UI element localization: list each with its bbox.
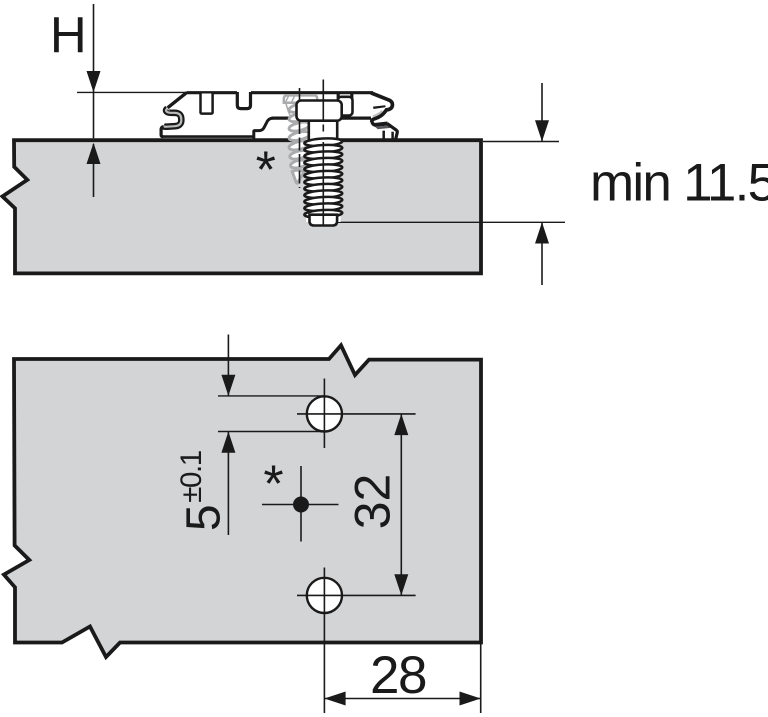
svg-text:*: * [256,141,276,199]
svg-text:H: H [50,7,87,64]
svg-text:*: * [263,456,283,514]
svg-text:32: 32 [345,474,401,530]
svg-text:28: 28 [370,646,426,705]
svg-text:min 11.5: min 11.5 [590,154,768,213]
